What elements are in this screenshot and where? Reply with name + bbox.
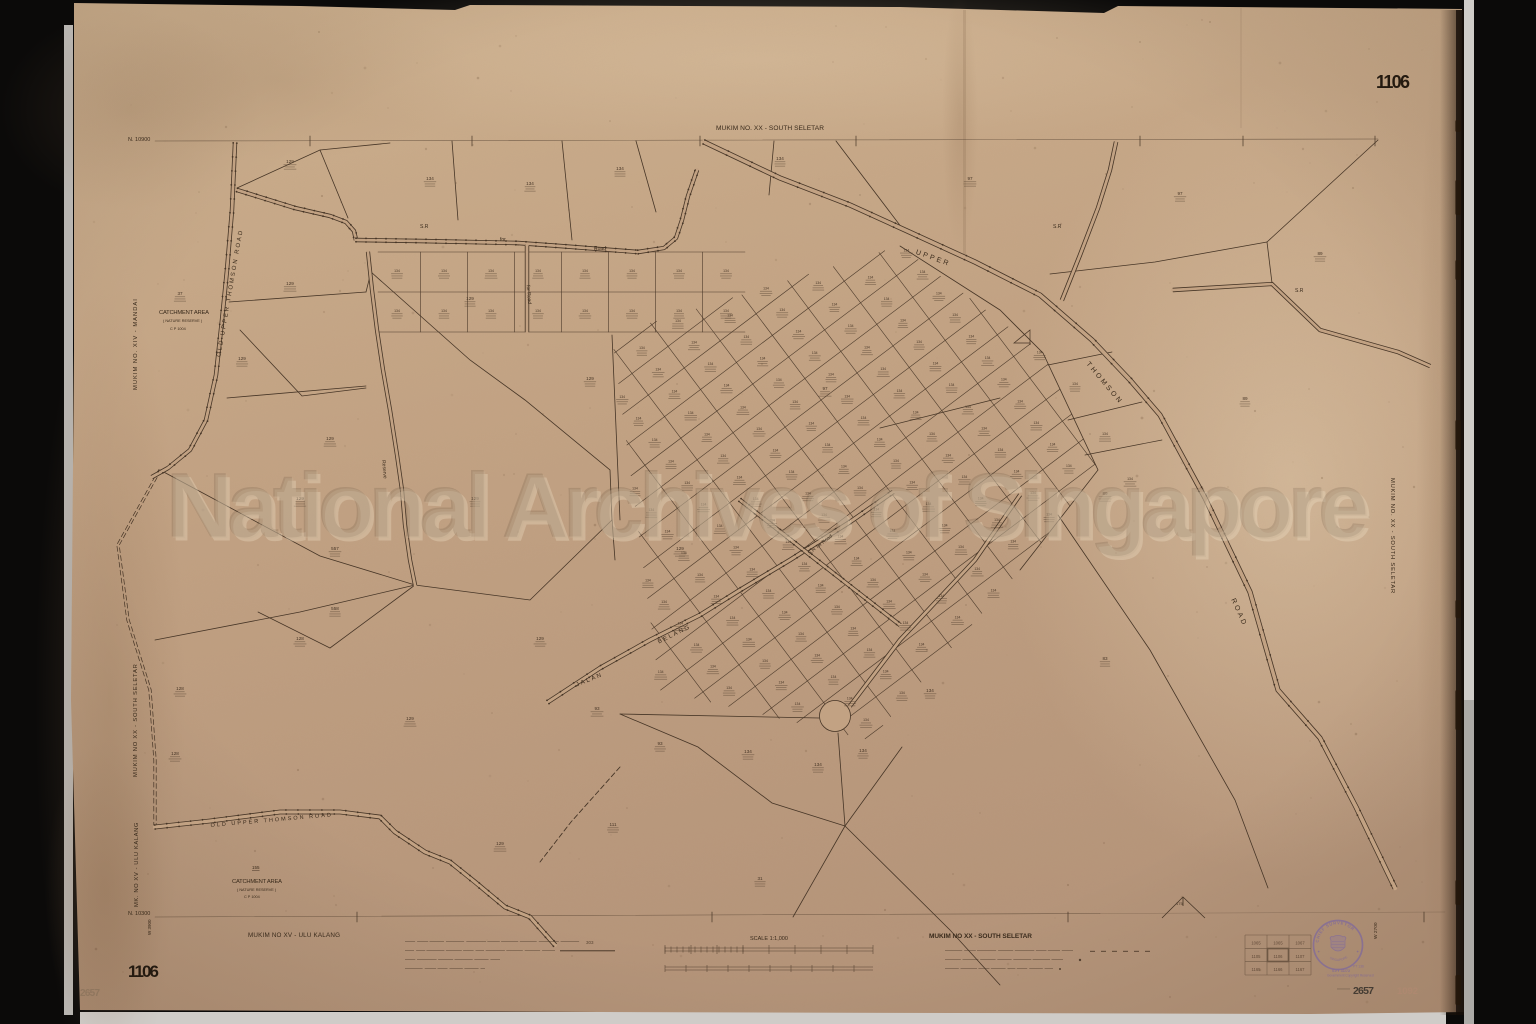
svg-text:N. 10300: N. 10300 — [128, 911, 150, 917]
svg-text:37: 37 — [177, 291, 183, 296]
svg-text:134: 134 — [723, 269, 729, 273]
svg-text:134: 134 — [782, 610, 788, 614]
svg-text:97: 97 — [822, 386, 828, 391]
svg-text:134: 134 — [645, 578, 651, 582]
svg-text:134: 134 — [1037, 351, 1043, 355]
svg-text:134: 134 — [1001, 378, 1007, 382]
svg-text:W 2700: W 2700 — [1373, 922, 1379, 939]
svg-text:S.R: S.R — [1053, 224, 1062, 230]
svg-text:134: 134 — [488, 269, 494, 273]
svg-text:✦: ✦ — [1317, 949, 1321, 954]
svg-text:134: 134 — [676, 309, 682, 313]
svg-text:134: 134 — [740, 405, 746, 409]
svg-text:128: 128 — [171, 751, 179, 756]
svg-text:134: 134 — [812, 351, 818, 355]
svg-text:MUKIM NO XX - SOUTH SELETAR: MUKIM NO XX - SOUTH SELETAR — [929, 933, 1032, 940]
svg-text:134: 134 — [968, 335, 974, 339]
svg-text:1165: 1165 — [1251, 967, 1261, 972]
svg-text:134: 134 — [773, 448, 779, 452]
svg-text:134: 134 — [778, 681, 784, 685]
svg-text:SCALE 1:1,000: SCALE 1:1,000 — [750, 936, 788, 942]
svg-text:134: 134 — [814, 654, 820, 658]
svg-text:134: 134 — [694, 643, 700, 647]
svg-text:134: 134 — [880, 367, 886, 371]
svg-text:MUKIM NO. XX - SOUTH SELETAR: MUKIM NO. XX - SOUTH SELETAR — [1389, 478, 1395, 594]
svg-text:134: 134 — [847, 697, 853, 701]
svg-text:134: 134 — [394, 269, 400, 273]
svg-text:134: 134 — [949, 383, 955, 387]
svg-text:128: 128 — [296, 636, 304, 641]
svg-text:134: 134 — [526, 181, 534, 186]
svg-text:1065: 1065 — [1251, 941, 1261, 946]
svg-text:W 3900: W 3900 — [147, 919, 152, 935]
svg-text:MUKIM NO. XIV - MANDAI: MUKIM NO. XIV - MANDAI — [133, 298, 139, 390]
svg-text:129: 129 — [286, 159, 294, 164]
svg-text:129: 129 — [238, 356, 246, 361]
svg-text:134: 134 — [808, 421, 814, 425]
svg-text:National Archives of Singapore: National Archives of Singapore — [167, 456, 1370, 558]
svg-text:134: 134 — [652, 438, 658, 442]
svg-text:134: 134 — [749, 567, 755, 571]
svg-text:PT 136: PT 136 — [1353, 965, 1364, 969]
svg-text:134: 134 — [776, 156, 784, 161]
svg-text:303: 303 — [586, 940, 594, 945]
svg-text:134: 134 — [1050, 442, 1056, 446]
svg-text:134: 134 — [756, 427, 762, 431]
svg-text:134: 134 — [920, 270, 926, 274]
svg-text:134: 134 — [814, 762, 822, 767]
svg-text:134: 134 — [779, 308, 785, 312]
svg-text:134: 134 — [776, 378, 782, 382]
svg-text:134: 134 — [535, 309, 541, 313]
svg-text:134: 134 — [922, 572, 928, 576]
svg-text:134: 134 — [867, 648, 873, 652]
svg-text:S.R: S.R — [420, 224, 429, 230]
svg-text:134: 134 — [723, 309, 729, 313]
svg-text:93: 93 — [594, 706, 600, 711]
svg-text:134: 134 — [933, 362, 939, 366]
svg-text:134: 134 — [877, 437, 883, 441]
svg-text:31: 31 — [757, 876, 763, 881]
svg-text:1067: 1067 — [1295, 941, 1305, 946]
svg-text:134: 134 — [582, 269, 588, 273]
svg-text:134: 134 — [903, 621, 909, 625]
svg-text:✦: ✦ — [1356, 949, 1360, 954]
svg-text:134: 134 — [704, 432, 710, 436]
svg-text:134: 134 — [955, 615, 961, 619]
svg-text:134: 134 — [762, 659, 768, 663]
svg-text:93: 93 — [657, 741, 663, 746]
svg-text:134: 134 — [802, 562, 808, 566]
svg-text:134: 134 — [655, 368, 661, 372]
svg-text:134: 134 — [582, 309, 588, 313]
svg-text:134: 134 — [861, 416, 867, 420]
svg-text:134: 134 — [724, 384, 730, 388]
svg-text:128: 128 — [176, 686, 184, 691]
svg-text:134: 134 — [938, 594, 944, 598]
svg-text:2657: 2657 — [1353, 985, 1374, 997]
svg-text:134: 134 — [886, 599, 892, 603]
svg-text:134: 134 — [897, 389, 903, 393]
svg-text:134: 134 — [535, 269, 541, 273]
svg-text:134: 134 — [903, 248, 909, 252]
svg-text:1106: 1106 — [1376, 72, 1410, 92]
svg-text:134: 134 — [675, 319, 681, 323]
svg-text:134: 134 — [744, 749, 752, 754]
svg-text:129: 129 — [536, 636, 544, 641]
svg-text:129: 129 — [586, 376, 594, 381]
svg-text:558: 558 — [331, 606, 339, 611]
svg-text:134: 134 — [619, 395, 625, 399]
svg-text:134: 134 — [760, 357, 766, 361]
svg-text:S.R: S.R — [1295, 288, 1304, 294]
svg-text:134: 134 — [636, 416, 642, 420]
svg-text:134: 134 — [965, 405, 971, 409]
svg-text:134: 134 — [658, 670, 664, 674]
svg-text:134: 134 — [863, 718, 869, 722]
svg-text:134: 134 — [981, 426, 987, 430]
svg-text:for: for — [500, 237, 506, 243]
svg-text:134: 134 — [868, 275, 874, 279]
svg-text:134: 134 — [831, 675, 837, 679]
svg-text:134: 134 — [844, 394, 850, 398]
svg-text:134: 134 — [913, 410, 919, 414]
svg-text:129: 129 — [326, 436, 334, 441]
svg-text:134: 134 — [697, 573, 703, 577]
svg-text:134: 134 — [488, 309, 494, 313]
svg-text:111: 111 — [610, 822, 617, 827]
svg-text:89: 89 — [1317, 251, 1323, 256]
svg-text:134: 134 — [792, 400, 798, 404]
svg-text:134: 134 — [743, 335, 749, 339]
svg-text:134: 134 — [688, 411, 694, 415]
svg-text:134: 134 — [850, 627, 856, 631]
svg-text:175: 175 — [1176, 901, 1183, 906]
svg-text:C P 1004: C P 1004 — [244, 895, 260, 899]
svg-text:134: 134 — [974, 567, 980, 571]
svg-text:SVY 31/72: SVY 31/72 — [1332, 969, 1350, 973]
svg-text:134: 134 — [864, 346, 870, 350]
svg-text:MUKIM NO. XX - SOUTH SELETAR: MUKIM NO. XX - SOUTH SELETAR — [716, 125, 824, 132]
svg-text:155: 155 — [252, 865, 260, 870]
svg-text:134: 134 — [834, 605, 840, 609]
svg-text:1105: 1105 — [1251, 954, 1261, 959]
svg-text:134: 134 — [394, 309, 400, 313]
svg-text:134: 134 — [998, 448, 1004, 452]
svg-text:134: 134 — [1102, 432, 1108, 436]
svg-text:1106: 1106 — [128, 962, 159, 981]
svg-text:1092: 1092 — [1397, 986, 1418, 997]
svg-text:134: 134 — [629, 269, 635, 273]
svg-text:134: 134 — [672, 389, 678, 393]
svg-text:N. 10900: N. 10900 — [128, 137, 150, 143]
svg-text:134: 134 — [798, 632, 804, 636]
svg-text:134: 134 — [766, 589, 772, 593]
svg-text:134: 134 — [639, 346, 645, 350]
svg-text:Government Copyright Reserved: Government Copyright Reserved — [1327, 974, 1374, 978]
svg-text:129: 129 — [496, 841, 504, 846]
svg-text:134: 134 — [883, 670, 889, 674]
svg-text:134: 134 — [730, 616, 736, 620]
svg-text:89: 89 — [1242, 396, 1248, 401]
svg-text:134: 134 — [952, 313, 958, 317]
svg-text:1065: 1065 — [1273, 941, 1283, 946]
svg-text:134: 134 — [727, 314, 733, 318]
svg-text:134: 134 — [678, 622, 684, 626]
svg-text:134: 134 — [726, 686, 732, 690]
svg-text:Road: Road — [594, 246, 606, 252]
svg-text:MUKIM NO XX - SOUTH SELETAR: MUKIM NO XX - SOUTH SELETAR — [133, 663, 139, 777]
svg-text:134: 134 — [691, 341, 697, 345]
svg-text:134: 134 — [441, 269, 447, 273]
svg-text:134: 134 — [713, 594, 719, 598]
svg-text:134: 134 — [828, 373, 834, 377]
svg-text:1107: 1107 — [1295, 954, 1305, 959]
svg-text:134: 134 — [616, 166, 624, 171]
svg-text:134: 134 — [929, 432, 935, 436]
svg-text:134: 134 — [710, 665, 716, 669]
svg-text:83: 83 — [1102, 656, 1108, 661]
svg-text:134: 134 — [629, 309, 635, 313]
svg-text:134: 134 — [746, 638, 752, 642]
svg-text:C P 1004: C P 1004 — [170, 327, 186, 331]
svg-text:134: 134 — [763, 287, 769, 291]
svg-text:1166: 1166 — [1273, 967, 1283, 972]
svg-text:2657: 2657 — [80, 988, 100, 999]
svg-text:134: 134 — [708, 362, 714, 366]
svg-text:134: 134 — [985, 356, 991, 360]
svg-text:CATCHMENT AREA: CATCHMENT AREA — [159, 310, 209, 316]
svg-text:134: 134 — [795, 702, 801, 706]
svg-text:97: 97 — [1177, 191, 1183, 196]
svg-text:134: 134 — [1072, 382, 1078, 386]
svg-text:134: 134 — [815, 281, 821, 285]
svg-text:MUKIM NO XV - ULU KALANG: MUKIM NO XV - ULU KALANG — [248, 932, 340, 939]
svg-text:134: 134 — [919, 643, 925, 647]
svg-text:1167: 1167 — [1295, 967, 1305, 972]
svg-text:CATCHMENT AREA: CATCHMENT AREA — [232, 879, 282, 885]
svg-text:134: 134 — [926, 688, 934, 693]
svg-text:134: 134 — [676, 269, 682, 273]
svg-text:134: 134 — [916, 340, 922, 344]
svg-text:134: 134 — [1017, 399, 1023, 403]
svg-text:134: 134 — [818, 583, 824, 587]
svg-text:134: 134 — [426, 176, 434, 181]
svg-text:( NATURE RESERVE ): ( NATURE RESERVE ) — [237, 888, 277, 892]
svg-text:( NATURE RESERVE ): ( NATURE RESERVE ) — [163, 319, 203, 323]
svg-text:134: 134 — [900, 319, 906, 323]
svg-text:134: 134 — [884, 297, 890, 301]
svg-text:134: 134 — [991, 588, 997, 592]
svg-text:134: 134 — [441, 309, 447, 313]
svg-text:129: 129 — [466, 296, 474, 301]
svg-text:1106: 1106 — [1273, 954, 1283, 959]
svg-text:97: 97 — [967, 176, 973, 181]
svg-text:134: 134 — [936, 292, 942, 296]
svg-text:134: 134 — [832, 303, 838, 307]
svg-text:134: 134 — [825, 443, 831, 447]
svg-text:134: 134 — [899, 691, 905, 695]
svg-text:134: 134 — [661, 600, 667, 604]
svg-text:134: 134 — [796, 330, 802, 334]
svg-text:129: 129 — [286, 281, 294, 286]
svg-text:134: 134 — [859, 748, 867, 753]
svg-text:134: 134 — [1033, 421, 1039, 425]
svg-text:134: 134 — [870, 578, 876, 582]
svg-text:134: 134 — [848, 324, 854, 328]
svg-text:MK. NO XV - ULU KALANG: MK. NO XV - ULU KALANG — [134, 822, 140, 907]
svg-text:129: 129 — [406, 716, 414, 721]
